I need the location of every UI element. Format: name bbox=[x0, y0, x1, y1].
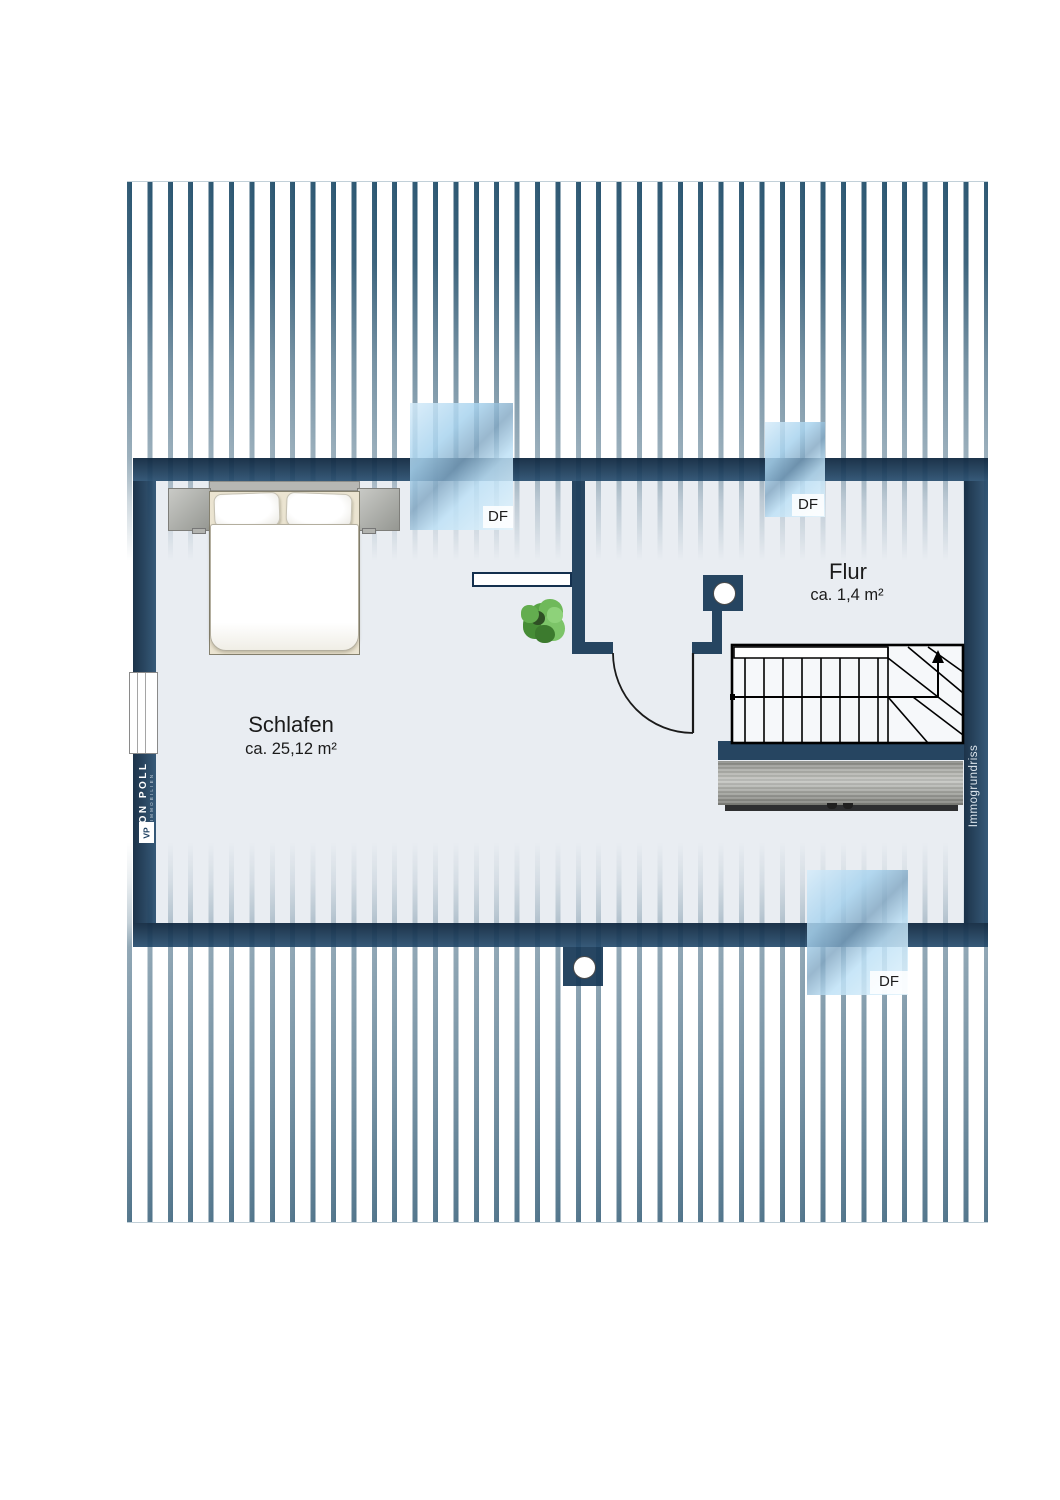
skylight-label: DF bbox=[870, 971, 908, 994]
wall-right bbox=[964, 481, 988, 923]
staircase bbox=[730, 643, 966, 745]
plant-icon bbox=[521, 597, 567, 645]
stripe-field-bottom-border bbox=[127, 1222, 988, 1223]
sideboard-shadow bbox=[725, 805, 958, 811]
immogrundriss-watermark: Immogrundriss bbox=[968, 716, 984, 856]
sideboard bbox=[718, 761, 963, 805]
nightstand-right bbox=[357, 488, 400, 531]
nightstand-knob bbox=[362, 528, 376, 534]
bed-duvet bbox=[210, 524, 359, 651]
wall-top bbox=[133, 458, 988, 481]
stair-handrail bbox=[734, 647, 888, 658]
bed-headboard bbox=[209, 481, 360, 491]
room-area-schlafen: ca. 25,12 m² bbox=[245, 740, 337, 759]
vp-monogram-text: VP bbox=[142, 827, 152, 838]
vonpoll-logo-sub: IMMOBILIEN bbox=[149, 773, 155, 822]
wall-bedroom-hall-divider bbox=[572, 481, 585, 642]
nightstand-knob bbox=[192, 528, 206, 534]
skylight-label: DF bbox=[483, 506, 513, 528]
room-name-flur: Flur bbox=[829, 559, 867, 585]
room-name-schlafen: Schlafen bbox=[248, 712, 334, 738]
door-swing-arc bbox=[613, 653, 693, 733]
wall-shelf bbox=[472, 572, 572, 587]
wall-column-stub bbox=[712, 611, 722, 642]
pipe-circle-icon bbox=[713, 582, 736, 605]
pipe-circle-icon bbox=[573, 956, 596, 979]
nightstand-left bbox=[168, 488, 211, 531]
stair-outline bbox=[732, 645, 963, 743]
skylight-label: DF bbox=[792, 494, 824, 516]
wall-divider-stub bbox=[572, 642, 613, 654]
stair-start-post bbox=[730, 694, 735, 700]
door-swing bbox=[610, 650, 700, 740]
sideboard-handle bbox=[843, 803, 853, 809]
double-bed bbox=[168, 481, 400, 655]
floor-plan-page: DF DF DF Schlafen ca. 25,12 m² Flur ca. … bbox=[0, 0, 1060, 1500]
room-area-flur: ca. 1,4 m² bbox=[810, 586, 883, 605]
vp-monogram: VP bbox=[139, 822, 154, 843]
sideboard-handle bbox=[827, 803, 837, 809]
